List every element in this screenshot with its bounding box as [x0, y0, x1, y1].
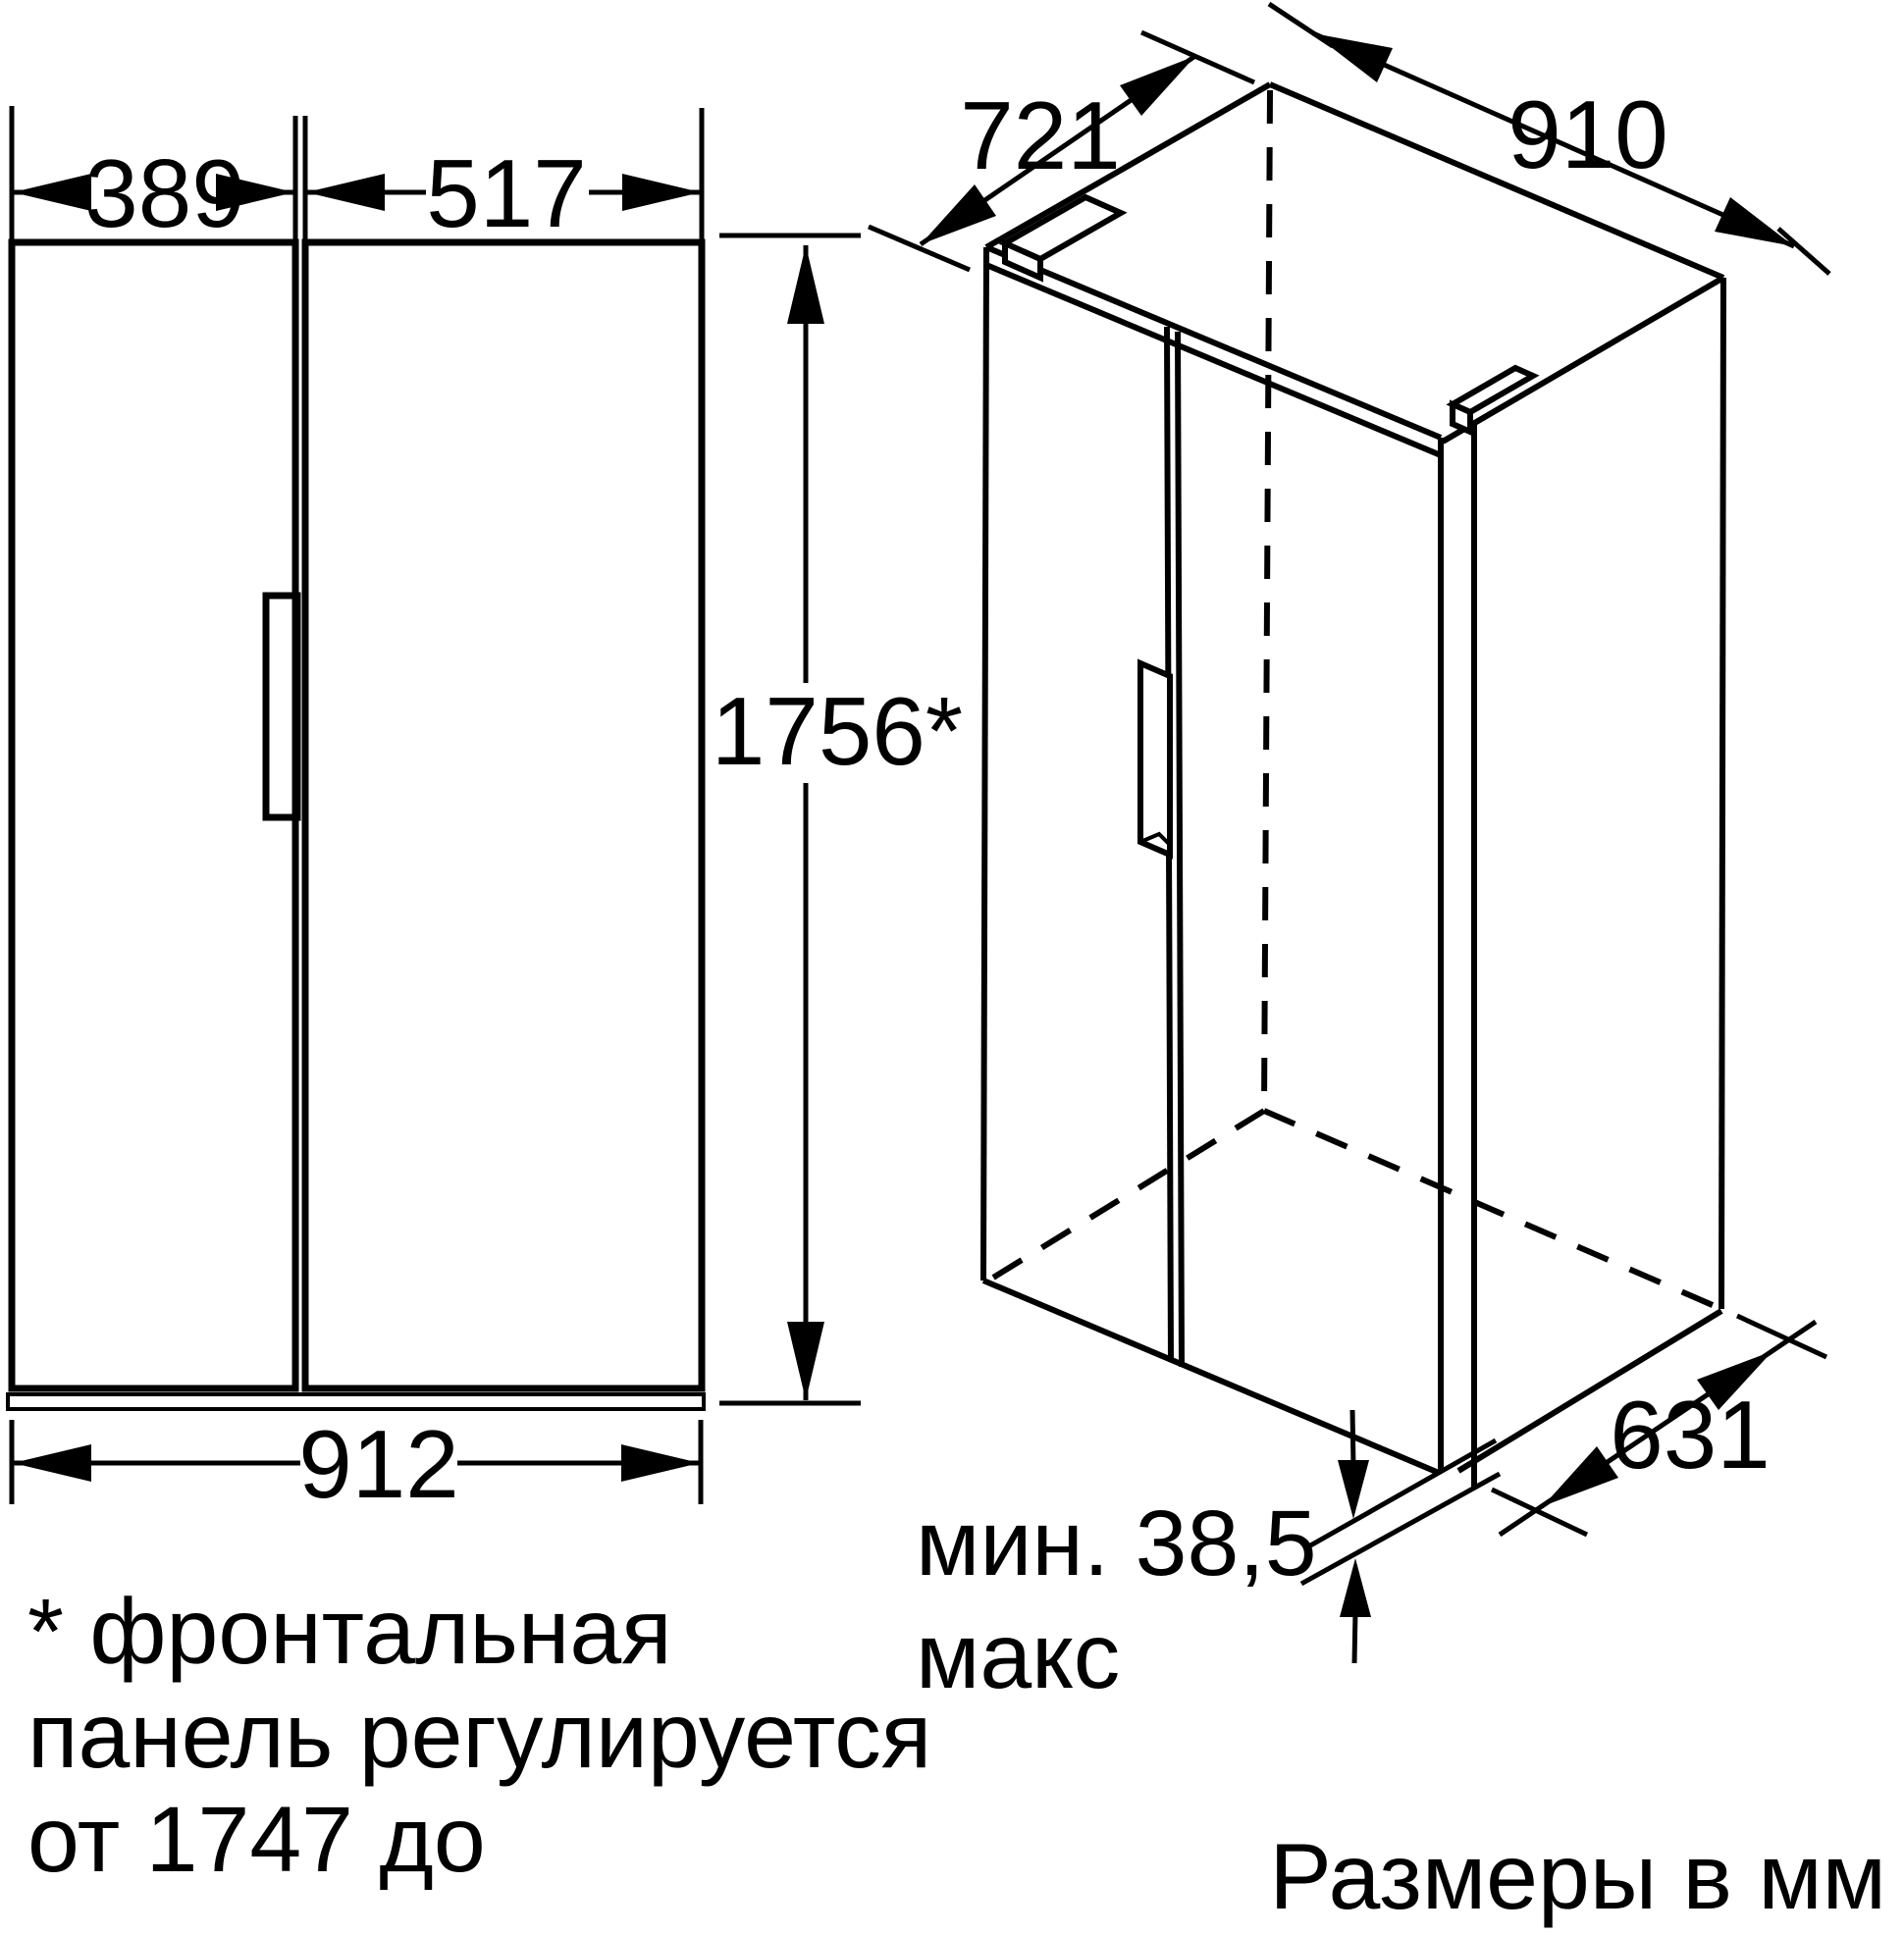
hidden-bottom-left-edge: [993, 1111, 1264, 1278]
front-view-drawing: 389 517 912: [8, 106, 963, 1518]
dim-top-depth-label: 721: [960, 81, 1121, 189]
appliance-dimension-diagram: 389 517 912: [0, 0, 1904, 1935]
dim-top-width: 910: [1269, 4, 1829, 274]
dim-height-label: 1756*: [712, 677, 963, 785]
dim-total-width-label: 912: [298, 1410, 459, 1518]
clearance-min-label: мин. 38,5: [916, 1491, 1317, 1595]
box-outline: [983, 84, 1723, 1488]
footnote-line-2: панель регулируется: [27, 1684, 931, 1788]
bottom-clearance-detail: [1301, 1410, 1500, 1663]
footnote: * фронтальная панель регулируется от 174…: [27, 1580, 931, 1892]
perspective-door-handle: [1140, 663, 1170, 855]
front-view-right-door: [305, 242, 702, 1388]
dim-top-width-label: 910: [1507, 80, 1668, 188]
hidden-bottom-back-edge: [1264, 1111, 1721, 1309]
dim-left-door-width: 389: [12, 106, 305, 247]
units-label: Размеры в мм: [1269, 1825, 1886, 1929]
joining-bracket-left: [1005, 197, 1121, 278]
joining-bracket-right: [1453, 368, 1533, 432]
front-view-plinth: [8, 1394, 704, 1409]
footnote-line-3: от 1747 до: [27, 1788, 486, 1892]
dim-left-door-width-label: 389: [84, 139, 245, 247]
footnote-line-1: * фронтальная: [27, 1580, 672, 1684]
perspective-view-drawing: 721 910 631 мин. 38,5 м: [869, 4, 1829, 1708]
dim-bottom-depth-label: 631: [1610, 1381, 1771, 1489]
hidden-back-left-edge: [1264, 90, 1270, 1111]
front-view-left-door: [12, 242, 295, 1388]
dim-height: 1756*: [712, 235, 963, 1403]
technical-drawing-page: 389 517 912: [0, 0, 1904, 1935]
dim-total-width: 912: [12, 1410, 701, 1518]
clearance-max-label: макс: [916, 1604, 1120, 1708]
dim-right-door-width: 517: [306, 108, 702, 247]
dim-right-door-width-label: 517: [426, 139, 587, 247]
